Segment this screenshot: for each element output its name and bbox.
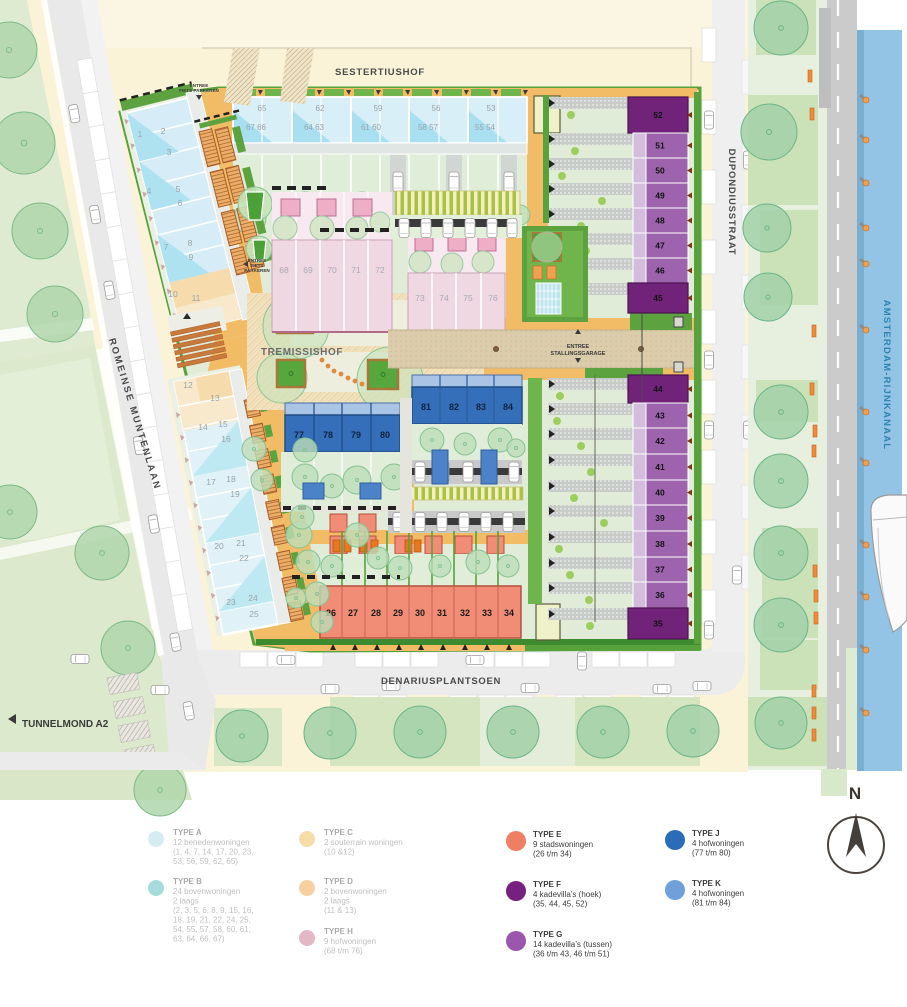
- svg-text:32: 32: [460, 608, 470, 618]
- svg-text:22: 22: [239, 553, 249, 563]
- svg-text:45: 45: [653, 293, 663, 303]
- svg-text:2 laags: 2 laags: [324, 897, 350, 906]
- svg-text:TYPE G: TYPE G: [533, 930, 562, 939]
- svg-text:63, 64, 66, 67): 63, 64, 66, 67): [173, 935, 225, 944]
- svg-text:STALLINGSGARAGE: STALLINGSGARAGE: [551, 351, 606, 357]
- svg-text:71: 71: [351, 265, 361, 275]
- svg-text:78: 78: [323, 430, 333, 440]
- svg-text:83: 83: [476, 402, 486, 412]
- svg-text:33: 33: [482, 608, 492, 618]
- svg-text:55 54: 55 54: [475, 123, 496, 132]
- svg-text:27: 27: [348, 608, 358, 618]
- svg-text:24: 24: [248, 593, 258, 603]
- svg-text:8: 8: [188, 238, 193, 248]
- svg-text:17: 17: [206, 477, 216, 487]
- svg-text:67 66: 67 66: [246, 123, 267, 132]
- svg-text:12: 12: [183, 380, 193, 390]
- svg-text:9 stadswoningen: 9 stadswoningen: [533, 840, 593, 849]
- svg-text:29: 29: [393, 608, 403, 618]
- svg-text:13: 13: [210, 393, 220, 403]
- svg-text:12 benedenwoningen: 12 benedenwoningen: [173, 838, 250, 847]
- svg-text:37: 37: [655, 565, 665, 575]
- svg-text:23: 23: [226, 597, 236, 607]
- svg-text:AMSTERDAM-RIJNKANAAL: AMSTERDAM-RIJNKANAAL: [881, 300, 892, 451]
- svg-text:46: 46: [655, 266, 665, 276]
- svg-text:(1, 4, 7, 14, 17, 20, 23,: (1, 4, 7, 14, 17, 20, 23,: [173, 848, 254, 857]
- svg-text:35: 35: [653, 619, 663, 629]
- svg-text:2 laags: 2 laags: [173, 897, 199, 906]
- svg-text:TYPE C: TYPE C: [324, 828, 353, 837]
- svg-text:38: 38: [655, 539, 665, 549]
- svg-text:73: 73: [415, 293, 425, 303]
- svg-text:TYPE H: TYPE H: [324, 927, 353, 936]
- svg-text:19: 19: [230, 489, 240, 499]
- svg-text:4 hofwoningen: 4 hofwoningen: [692, 839, 744, 848]
- svg-text:PARKEREN: PARKEREN: [244, 268, 270, 273]
- svg-text:TYPE D: TYPE D: [324, 877, 353, 886]
- svg-text:2 bovenwoningen: 2 bovenwoningen: [324, 887, 387, 896]
- svg-text:4 hofwoningen: 4 hofwoningen: [692, 889, 744, 898]
- svg-text:14: 14: [198, 422, 208, 432]
- svg-text:TYPE E: TYPE E: [533, 830, 562, 839]
- svg-text:3: 3: [167, 147, 172, 157]
- svg-text:15: 15: [218, 419, 228, 429]
- svg-text:TYPE J: TYPE J: [692, 829, 720, 838]
- svg-text:6: 6: [178, 198, 183, 208]
- svg-text:TREMISSISHOF: TREMISSISHOF: [261, 347, 343, 358]
- svg-text:50: 50: [655, 166, 665, 176]
- svg-text:75: 75: [463, 293, 473, 303]
- svg-text:61 60: 61 60: [361, 123, 382, 132]
- svg-text:FIETS PARKEREN: FIETS PARKEREN: [179, 88, 219, 93]
- svg-text:53, 56, 59, 62, 65): 53, 56, 59, 62, 65): [173, 857, 238, 866]
- svg-text:N: N: [849, 784, 861, 803]
- svg-text:54, 55, 57, 58, 60, 61,: 54, 55, 57, 58, 60, 61,: [173, 925, 251, 934]
- svg-text:21: 21: [236, 538, 246, 548]
- svg-text:16: 16: [221, 434, 231, 444]
- svg-text:DUPONDIUSSTRAAT: DUPONDIUSSTRAAT: [726, 149, 737, 256]
- svg-text:30: 30: [415, 608, 425, 618]
- svg-text:68: 68: [279, 265, 289, 275]
- svg-text:28: 28: [371, 608, 381, 618]
- svg-text:SESTERTIUSHOF: SESTERTIUSHOF: [335, 67, 425, 78]
- svg-text:TYPE B: TYPE B: [173, 877, 202, 886]
- svg-text:48: 48: [655, 216, 665, 226]
- svg-text:4: 4: [147, 186, 152, 196]
- svg-text:2 souterrain woningen: 2 souterrain woningen: [324, 838, 403, 847]
- svg-text:2: 2: [161, 126, 166, 136]
- svg-text:5: 5: [176, 184, 181, 194]
- svg-text:49: 49: [655, 191, 665, 201]
- svg-text:11: 11: [192, 293, 201, 303]
- svg-text:(36 t/m 43, 46 t/m 51): (36 t/m 43, 46 t/m 51): [533, 950, 610, 959]
- svg-text:18: 18: [226, 474, 236, 484]
- svg-text:51: 51: [655, 141, 665, 151]
- svg-text:47: 47: [655, 241, 665, 251]
- svg-text:4 kadevilla’s (hoek): 4 kadevilla’s (hoek): [533, 890, 602, 899]
- svg-text:(26 t/m 34): (26 t/m 34): [533, 850, 572, 859]
- svg-text:(81 t/m 84): (81 t/m 84): [692, 899, 731, 908]
- svg-text:TYPE K: TYPE K: [692, 879, 721, 888]
- svg-text:43: 43: [655, 411, 665, 421]
- svg-text:74: 74: [439, 293, 449, 303]
- svg-text:62: 62: [316, 104, 325, 113]
- svg-text:40: 40: [655, 488, 665, 498]
- svg-text:1: 1: [138, 129, 143, 139]
- svg-text:14 kadevilla’s (tussen): 14 kadevilla’s (tussen): [533, 940, 612, 949]
- svg-text:36: 36: [655, 590, 665, 600]
- svg-text:59: 59: [374, 104, 383, 113]
- svg-text:TUNNELMOND A2: TUNNELMOND A2: [22, 719, 109, 730]
- svg-text:72: 72: [375, 265, 385, 275]
- svg-text:TYPE A: TYPE A: [173, 828, 202, 837]
- svg-text:(10 &12): (10 &12): [324, 848, 355, 857]
- svg-text:52: 52: [653, 110, 663, 120]
- svg-text:(11 & 13): (11 & 13): [324, 906, 357, 915]
- svg-text:64 63: 64 63: [304, 123, 325, 132]
- svg-text:84: 84: [503, 402, 513, 412]
- svg-text:34: 34: [504, 608, 514, 618]
- svg-text:56: 56: [432, 104, 441, 113]
- svg-text:41: 41: [655, 462, 665, 472]
- svg-text:44: 44: [653, 384, 663, 394]
- svg-text:(68 t/m 76): (68 t/m 76): [324, 947, 363, 956]
- svg-text:7: 7: [164, 242, 169, 252]
- svg-text:69: 69: [303, 265, 313, 275]
- svg-text:76: 76: [488, 293, 498, 303]
- svg-text:(2, 3, 5, 6, 8, 9, 15, 16,: (2, 3, 5, 6, 8, 9, 15, 16,: [173, 906, 254, 915]
- svg-text:10: 10: [168, 289, 178, 299]
- svg-text:9 hofwoningen: 9 hofwoningen: [324, 937, 376, 946]
- svg-text:(35, 44, 45, 52): (35, 44, 45, 52): [533, 900, 588, 909]
- svg-text:(77 t/m 80): (77 t/m 80): [692, 849, 731, 858]
- svg-text:81: 81: [421, 402, 431, 412]
- svg-text:31: 31: [437, 608, 447, 618]
- svg-text:65: 65: [258, 104, 267, 113]
- svg-text:9: 9: [189, 252, 194, 262]
- svg-text:79: 79: [351, 430, 361, 440]
- svg-text:58 57: 58 57: [418, 123, 439, 132]
- svg-text:18, 19, 21, 22, 24, 25,: 18, 19, 21, 22, 24, 25,: [173, 916, 251, 925]
- svg-text:ENTREE: ENTREE: [567, 344, 590, 350]
- svg-text:24 bovenwoningen: 24 bovenwoningen: [173, 887, 240, 896]
- svg-text:70: 70: [327, 265, 337, 275]
- svg-text:42: 42: [655, 436, 665, 446]
- svg-text:82: 82: [449, 402, 459, 412]
- svg-text:39: 39: [655, 513, 665, 523]
- svg-text:20: 20: [214, 541, 224, 551]
- svg-text:TYPE F: TYPE F: [533, 880, 561, 889]
- svg-text:80: 80: [380, 430, 390, 440]
- svg-text:25: 25: [249, 609, 259, 619]
- svg-text:53: 53: [487, 104, 496, 113]
- svg-text:DENARIUSPLANTSOEN: DENARIUSPLANTSOEN: [381, 676, 501, 687]
